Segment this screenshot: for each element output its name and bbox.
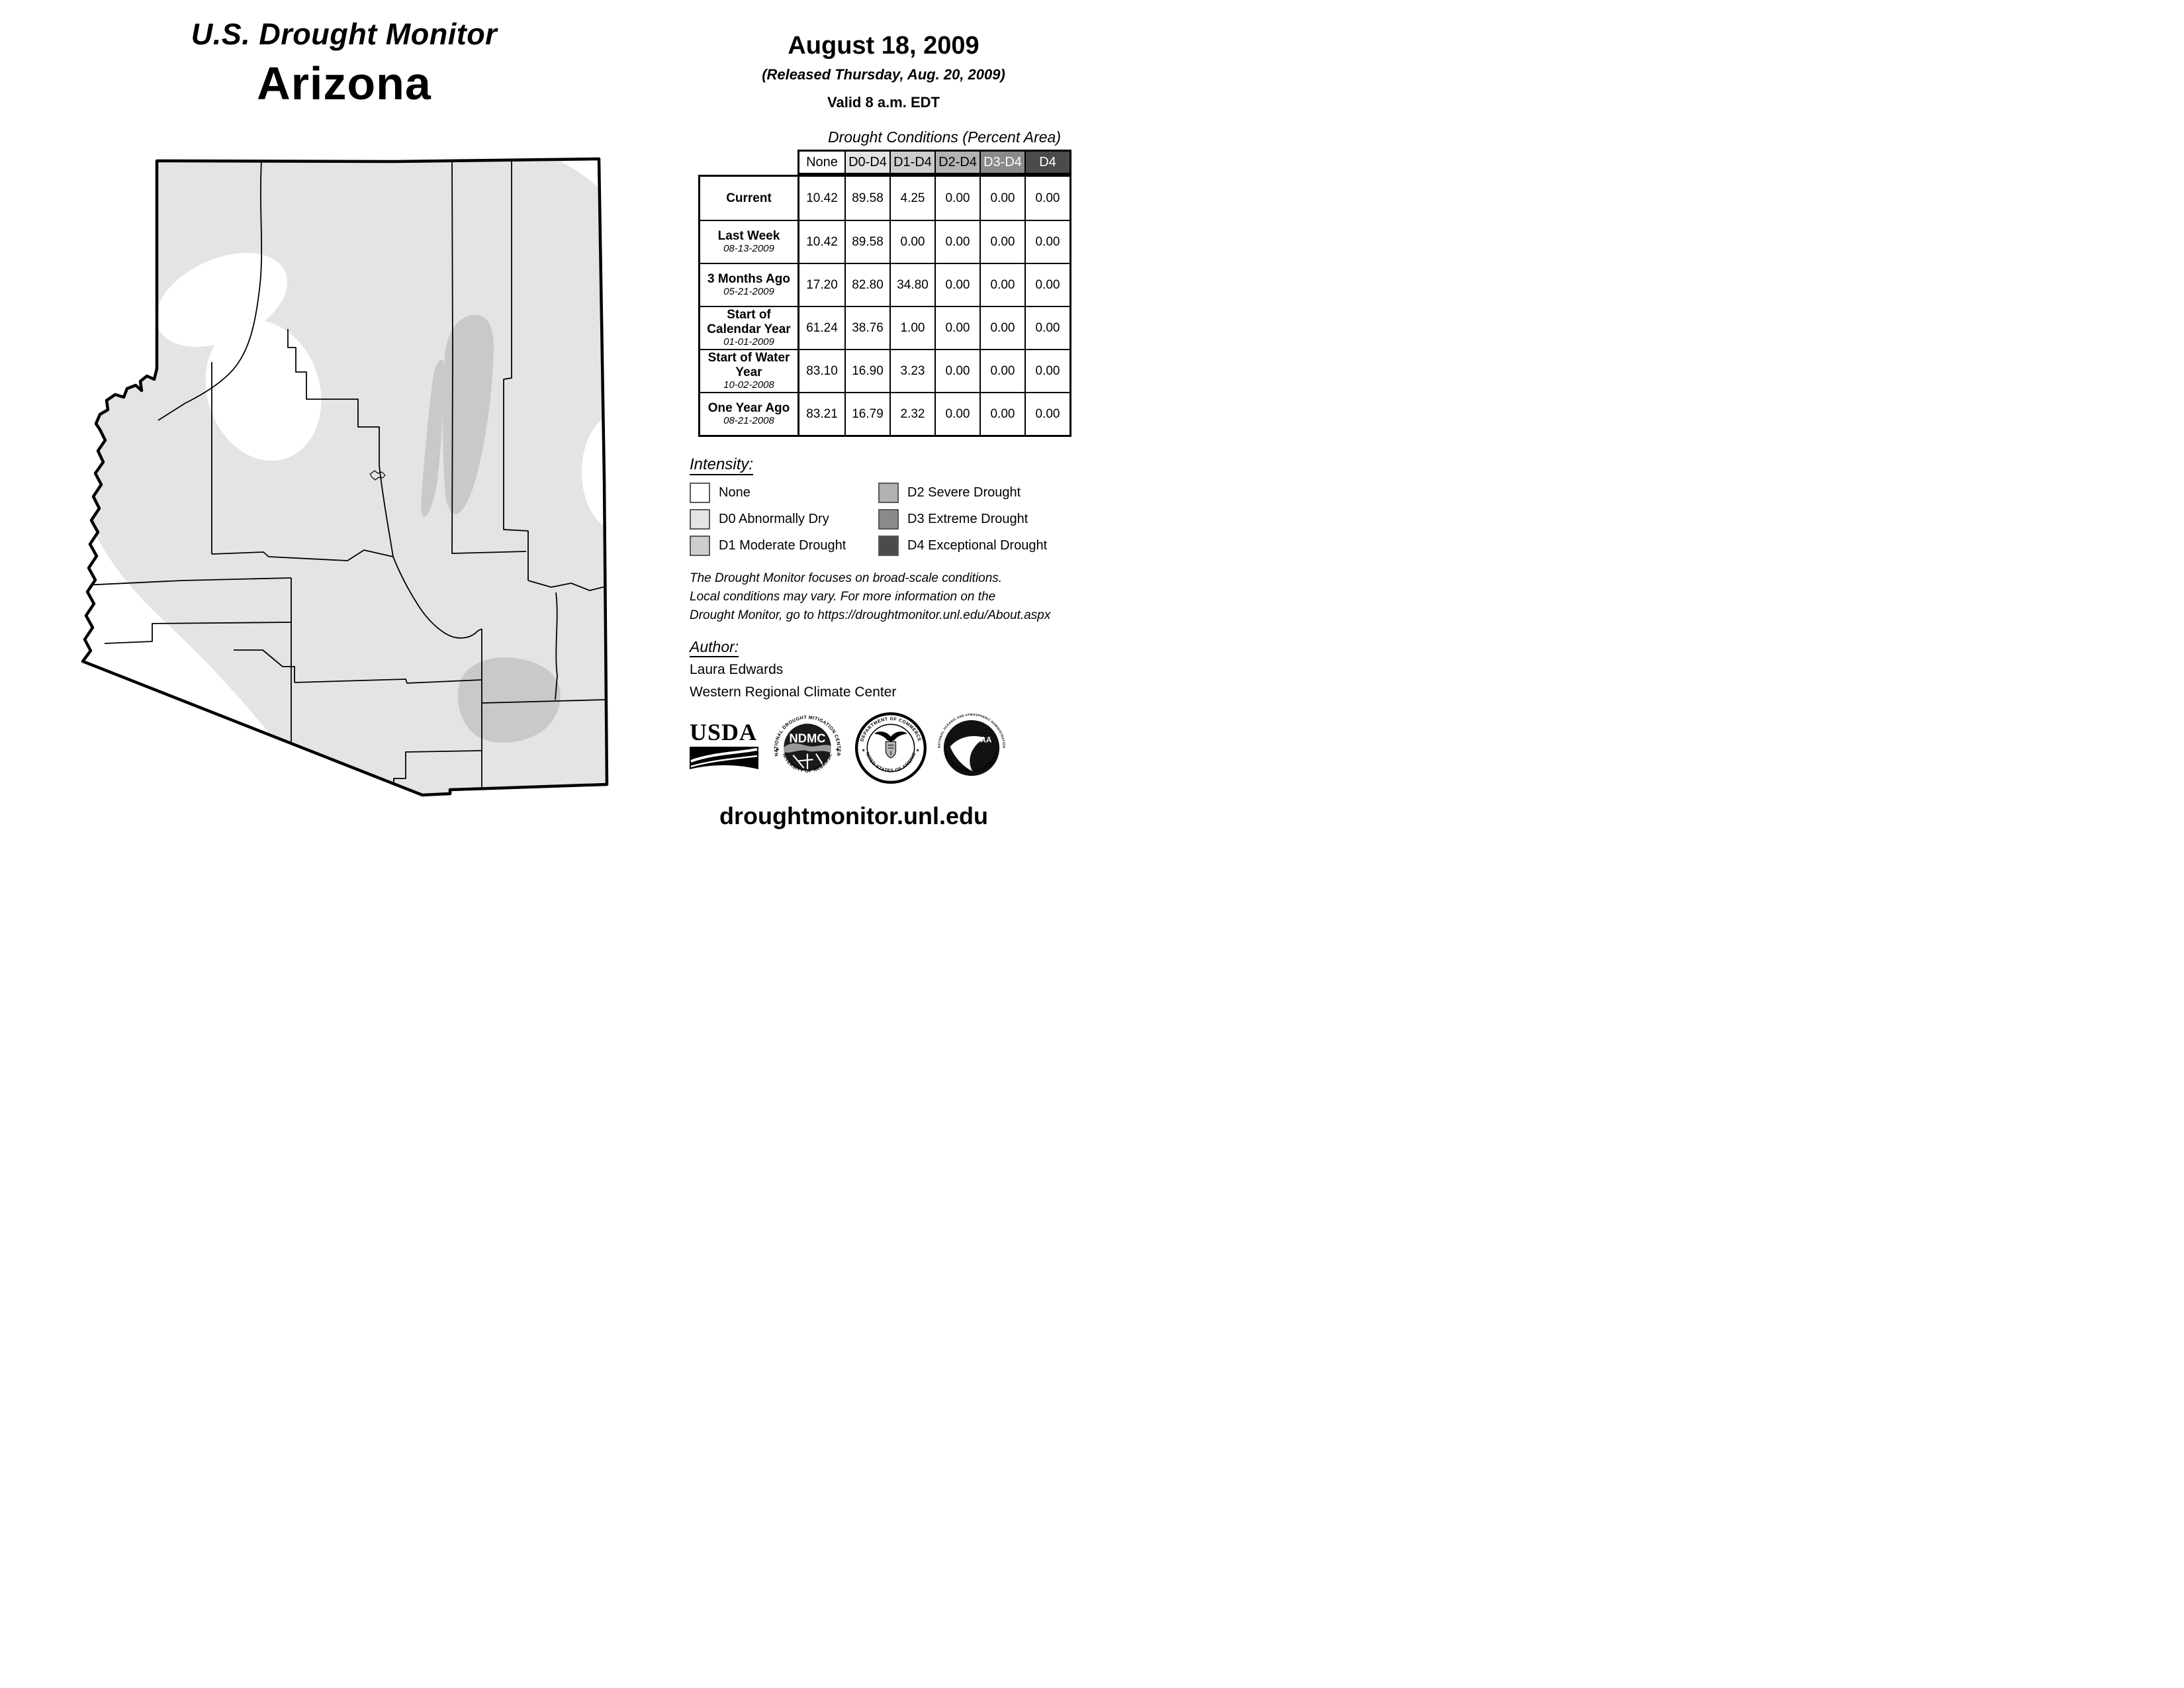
- column-header-d1d4: D1-D4: [889, 152, 934, 173]
- cell-value: 0.00: [979, 393, 1024, 435]
- cell-value: 0.00: [934, 264, 979, 306]
- arizona-drought-map: [63, 156, 632, 804]
- author-heading: Author:: [690, 638, 739, 656]
- legend-swatch-none: [690, 483, 710, 503]
- legend-title: Intensity:: [690, 455, 753, 474]
- legend-item: None: [690, 479, 878, 506]
- cell-value: 0.00: [1024, 177, 1069, 220]
- page-title: U.S. Drought Monitor: [126, 17, 563, 52]
- cell-value: 0.00: [934, 307, 979, 349]
- row-label: Last Week: [718, 229, 780, 243]
- legend-item: D0 Abnormally Dry: [690, 506, 878, 532]
- usda-swoosh-icon: [690, 744, 758, 772]
- table-body: Current 10.42 89.58 4.25 0.00 0.00 0.00 …: [698, 175, 1071, 437]
- legend-label: None: [719, 485, 751, 500]
- cell-value: 0.00: [979, 177, 1024, 220]
- ndmc-logo: NDMC NATIONAL DROUGHT MITIGATION CENTER …: [772, 712, 843, 787]
- row-label: 3 Months Ago: [707, 272, 790, 286]
- table-row: One Year Ago08-21-2008 83.21 16.79 2.32 …: [700, 392, 1069, 435]
- cell-value: 0.00: [1024, 393, 1069, 435]
- row-label: Start of Water Year: [703, 351, 795, 379]
- noaa-center-text: NOAA: [968, 735, 991, 744]
- ndmc-center-text: NDMC: [789, 731, 825, 745]
- table-row: Current 10.42 89.58 4.25 0.00 0.00 0.00: [700, 177, 1069, 220]
- cell-value: 17.20: [799, 264, 844, 306]
- legend-item: D4 Exceptional Drought: [878, 532, 1072, 559]
- agency-logos: USDA NDMC NATIONAL DROUGHT MITIGATION CE…: [690, 712, 1073, 792]
- table-caption: Drought Conditions (Percent Area): [698, 128, 1061, 146]
- intensity-legend: None D0 Abnormally Dry D1 Moderate Droug…: [690, 479, 1072, 559]
- commerce-seal-icon: DEPARTMENT OF COMMERCE UNITED STATES OF …: [855, 712, 927, 784]
- cell-value: 2.32: [889, 393, 934, 435]
- row-date: 01-01-2009: [723, 336, 774, 348]
- legend-label: D3 Extreme Drought: [907, 512, 1028, 527]
- cell-value: 16.79: [844, 393, 889, 435]
- column-header-d2d4: D2-D4: [934, 152, 979, 173]
- map-titles: U.S. Drought Monitor Arizona: [126, 17, 563, 110]
- legend-label: D4 Exceptional Drought: [907, 538, 1047, 553]
- commerce-seal-logo: DEPARTMENT OF COMMERCE UNITED STATES OF …: [855, 712, 927, 787]
- cell-value: 4.25: [889, 177, 934, 220]
- legend-swatch-d4: [878, 536, 899, 556]
- disclaimer-text: The Drought Monitor focuses on broad-sca…: [690, 569, 1073, 625]
- cell-value: 0.00: [934, 393, 979, 435]
- usda-logo-text: USDA: [690, 720, 758, 744]
- legend-item: D1 Moderate Drought: [690, 532, 878, 559]
- cell-value: 0.00: [979, 264, 1024, 306]
- row-label: One Year Ago: [708, 401, 790, 415]
- cell-value: 0.00: [934, 221, 979, 263]
- cell-value: 0.00: [979, 307, 1024, 349]
- report-date: August 18, 2009: [682, 32, 1085, 60]
- row-date: 08-21-2008: [723, 415, 774, 427]
- cell-value: 0.00: [1024, 264, 1069, 306]
- cell-value: 89.58: [844, 177, 889, 220]
- row-date: 05-21-2009: [723, 286, 774, 298]
- ndmc-seal-icon: NDMC NATIONAL DROUGHT MITIGATION CENTER …: [772, 712, 843, 784]
- website-url: droughtmonitor.unl.edu: [662, 802, 1046, 830]
- cell-value: 61.24: [799, 307, 844, 349]
- row-date: 08-13-2009: [723, 243, 774, 255]
- cell-value: 83.21: [799, 393, 844, 435]
- cell-value: 38.76: [844, 307, 889, 349]
- region-title: Arizona: [126, 57, 563, 110]
- row-label: Current: [726, 191, 772, 205]
- cell-value: 1.00: [889, 307, 934, 349]
- arizona-map-svg: [63, 156, 632, 804]
- cell-value: 0.00: [1024, 221, 1069, 263]
- disclaimer-line: Local conditions may vary. For more info…: [690, 588, 1073, 606]
- legend-label: D2 Severe Drought: [907, 485, 1021, 500]
- cell-value: 0.00: [1024, 307, 1069, 349]
- table-row: Last Week08-13-2009 10.42 89.58 0.00 0.0…: [700, 220, 1069, 263]
- cell-value: 83.10: [799, 350, 844, 392]
- usda-logo: USDA: [690, 712, 758, 786]
- legend-swatch-d0: [690, 509, 710, 530]
- legend-swatch-d3: [878, 509, 899, 530]
- cell-value: 0.00: [979, 350, 1024, 392]
- cell-value: 34.80: [889, 264, 934, 306]
- valid-time: Valid 8 a.m. EDT: [682, 94, 1085, 111]
- row-label: Start of Calendar Year: [703, 308, 795, 336]
- column-header-d0d4: D0-D4: [844, 152, 889, 173]
- drought-conditions-table: None D0-D4 D1-D4 D2-D4 D3-D4 D4 Current …: [698, 150, 1071, 438]
- released-date: (Released Thursday, Aug. 20, 2009): [682, 66, 1085, 83]
- legend-swatch-d2: [878, 483, 899, 503]
- table-header-row: None D0-D4 D1-D4 D2-D4 D3-D4 D4: [797, 150, 1071, 175]
- disclaimer-line: The Drought Monitor focuses on broad-sca…: [690, 569, 1073, 588]
- noaa-seal-icon: NOAA NATIONAL OCEANIC AND ATMOSPHERIC AD…: [936, 712, 1007, 784]
- svg-text:★: ★: [862, 748, 866, 753]
- author-name: Laura Edwards: [690, 662, 783, 678]
- table-row: Start of Water Year10-02-2008 83.10 16.9…: [700, 349, 1069, 392]
- cell-value: 3.23: [889, 350, 934, 392]
- cell-value: 0.00: [934, 350, 979, 392]
- shield-icon: [886, 741, 895, 758]
- table-row: Start of Calendar Year01-01-2009 61.24 3…: [700, 306, 1069, 349]
- legend-item: D3 Extreme Drought: [878, 506, 1072, 532]
- legend-label: D0 Abnormally Dry: [719, 512, 829, 527]
- disclaimer-line: Drought Monitor, go to https://droughtmo…: [690, 606, 1073, 625]
- legend-item: D2 Severe Drought: [878, 479, 1072, 506]
- cell-value: 0.00: [889, 221, 934, 263]
- cell-value: 82.80: [844, 264, 889, 306]
- author-organization: Western Regional Climate Center: [690, 684, 896, 700]
- cell-value: 89.58: [844, 221, 889, 263]
- table-row: 3 Months Ago05-21-2009 17.20 82.80 34.80…: [700, 263, 1069, 306]
- legend-swatch-d1: [690, 536, 710, 556]
- column-header-d3d4: D3-D4: [979, 152, 1024, 173]
- column-header-none: None: [799, 152, 844, 173]
- cell-value: 0.00: [934, 177, 979, 220]
- column-header-d4: D4: [1024, 152, 1069, 173]
- row-date: 10-02-2008: [723, 379, 774, 391]
- cell-value: 10.42: [799, 177, 844, 220]
- cell-value: 0.00: [1024, 350, 1069, 392]
- svg-text:★: ★: [916, 748, 920, 753]
- drought-monitor-report: U.S. Drought Monitor Arizona: [0, 0, 1092, 844]
- legend-label: D1 Moderate Drought: [719, 538, 846, 553]
- cell-value: 0.00: [979, 221, 1024, 263]
- cell-value: 16.90: [844, 350, 889, 392]
- noaa-logo: NOAA NATIONAL OCEANIC AND ATMOSPHERIC AD…: [936, 712, 1007, 787]
- cell-value: 10.42: [799, 221, 844, 263]
